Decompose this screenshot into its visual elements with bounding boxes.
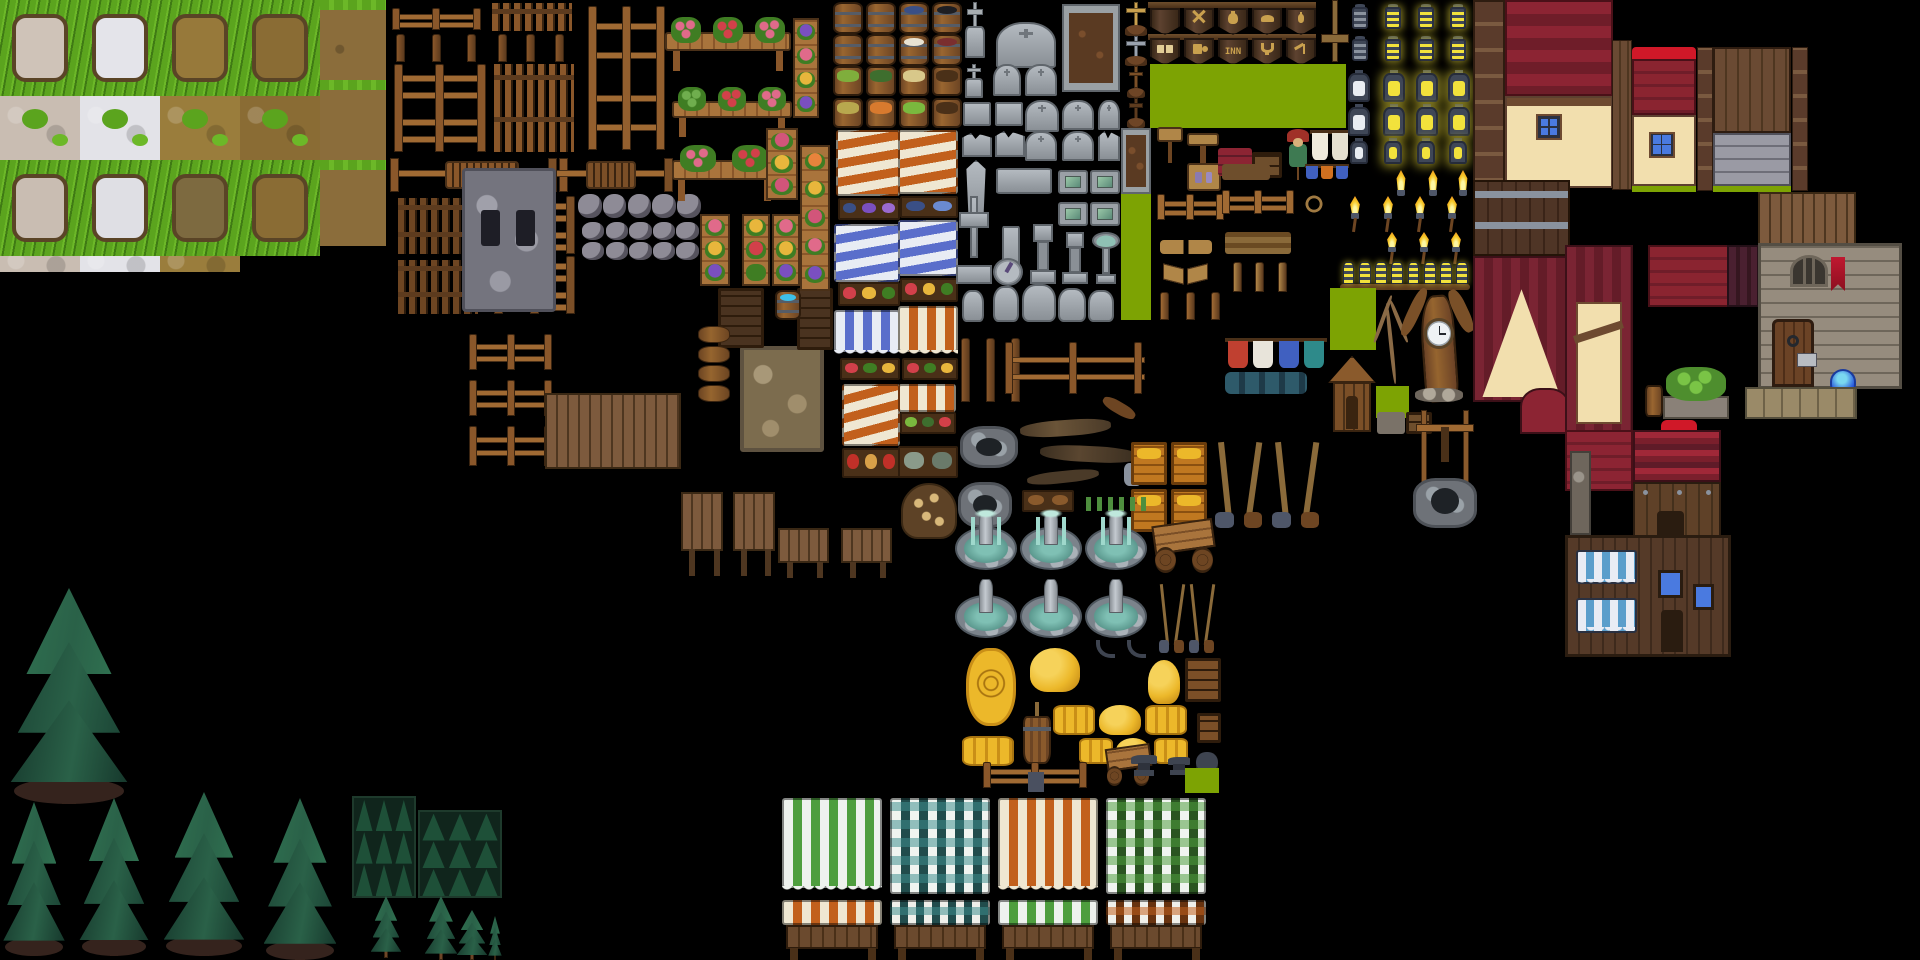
- fence-post: [432, 34, 441, 62]
- path-tile: [160, 256, 240, 272]
- log: [698, 385, 730, 402]
- cross-h: [1126, 8, 1145, 13]
- barrel-contents: [904, 38, 924, 46]
- cross-mark: [1077, 105, 1079, 111]
- bush-planter: [1663, 367, 1729, 419]
- cross-mark: [1024, 29, 1028, 38]
- tool-handle: [1275, 442, 1289, 519]
- fence-post: [986, 338, 995, 402]
- barrel-hoop: [835, 56, 861, 59]
- barrel-hoop: [868, 24, 894, 27]
- garment: [1321, 166, 1333, 180]
- tiny-pine: [475, 814, 497, 841]
- torch: [1410, 196, 1430, 232]
- inn-sign-text: INN: [1220, 40, 1246, 63]
- stick-lantern: [1375, 262, 1387, 284]
- shop-sign-pendant: [1252, 38, 1282, 65]
- goods: [843, 203, 857, 214]
- anvil: [1128, 750, 1160, 776]
- log: [698, 365, 730, 382]
- beam: [1507, 98, 1611, 106]
- flower-planter: [772, 214, 800, 286]
- lantern-body: [1418, 39, 1434, 61]
- barrel-contents: [904, 6, 924, 14]
- flowers: [755, 17, 784, 43]
- sundial: [993, 258, 1023, 286]
- lantern-frame: [1348, 107, 1370, 136]
- dirt-mound: [1125, 56, 1147, 66]
- market-stall: [1106, 900, 1206, 960]
- fence-post: [507, 334, 515, 370]
- flowers: [805, 238, 826, 255]
- bush: [1666, 367, 1727, 401]
- boulder: [629, 242, 651, 260]
- flame: [1427, 170, 1440, 191]
- awning-cloth: [898, 306, 958, 352]
- tombstone-broken: [995, 131, 1025, 157]
- cross-h: [1129, 72, 1144, 76]
- tombstone-slab: [963, 102, 991, 126]
- scythe-hook: [1096, 640, 1115, 658]
- grass-tuft: [52, 134, 68, 146]
- gable-wall: [1505, 96, 1613, 188]
- garment: [1279, 341, 1299, 368]
- hay-top: [1177, 495, 1201, 506]
- cage-lantern: [1450, 36, 1466, 64]
- lantern-small-yellow: [1449, 138, 1467, 166]
- pole-fence: [1222, 188, 1292, 216]
- barrel: [833, 2, 863, 34]
- lantern-frame: [1416, 107, 1438, 136]
- tiny-pine: [356, 832, 373, 863]
- torch-handle: [1385, 218, 1390, 232]
- barrel-flour: [899, 34, 929, 66]
- fence-post: [1278, 262, 1287, 292]
- fence-post: [1233, 262, 1242, 292]
- tiny-pine: [356, 865, 373, 896]
- basket-contents: [903, 70, 925, 81]
- goods: [847, 454, 860, 470]
- barrel-half: [1645, 385, 1663, 417]
- fountain-spray: [1104, 509, 1129, 518]
- hay-roll-spiral: [966, 648, 1016, 726]
- fence-gate-row: [548, 158, 674, 192]
- cross-mark: [1041, 105, 1043, 111]
- water-barrel: [775, 290, 801, 320]
- fence-post: [544, 334, 552, 370]
- flowers: [797, 96, 815, 112]
- fence-post: [1160, 292, 1169, 320]
- fence-post: [1186, 194, 1194, 220]
- basket-contents: [936, 102, 958, 113]
- flame: [1395, 170, 1408, 191]
- tool-head: [1301, 512, 1319, 528]
- lantern-white: [1348, 70, 1370, 104]
- stall-counter: [786, 925, 878, 949]
- lantern-body: [1352, 7, 1368, 29]
- goods: [1052, 495, 1069, 506]
- rail-fence-small: [469, 332, 551, 372]
- water-jet: [971, 517, 975, 545]
- window-pane: [1541, 128, 1548, 135]
- clothesline-posts: [1157, 292, 1221, 320]
- water-jet: [1062, 517, 1066, 545]
- torch-flame: [1418, 232, 1431, 249]
- satchel: [1195, 172, 1202, 183]
- sign-board: [1157, 127, 1183, 142]
- dial-gnomon: [1005, 262, 1014, 273]
- fence-post: [555, 34, 564, 62]
- stall-leg: [868, 948, 876, 960]
- goods: [939, 417, 951, 428]
- clothesline-colored: [1225, 338, 1327, 370]
- stall-awning-blue: [834, 224, 900, 282]
- terrain-patch: [12, 14, 68, 82]
- torch: [1378, 196, 1398, 232]
- roof: [1632, 47, 1696, 115]
- fence-post: [1005, 342, 1013, 394]
- shop-sign-tools: [1286, 38, 1316, 65]
- torch-handle: [1417, 218, 1422, 232]
- torch-flame: [1446, 196, 1459, 215]
- plaque-glass: [1097, 176, 1114, 188]
- fence-rail: [494, 117, 574, 122]
- flowers: [771, 178, 793, 195]
- stall-leg: [1084, 948, 1092, 960]
- well-rope: [1441, 427, 1449, 462]
- small-pine: [456, 910, 488, 960]
- hay-top: [1177, 448, 1201, 459]
- goods: [941, 363, 953, 374]
- cobblestone-wall-windows: [462, 168, 556, 312]
- carved-pillar: [1792, 47, 1808, 191]
- basket-carrots: [866, 98, 896, 128]
- lantern-glass: [1353, 115, 1365, 130]
- goods: [933, 201, 952, 212]
- wide-sign: [1187, 133, 1219, 163]
- jar: [1228, 13, 1237, 23]
- flowers: [678, 87, 706, 111]
- well-with-pulley: [1413, 410, 1477, 528]
- book-page: [1157, 45, 1164, 53]
- fountain-pillar: [1109, 579, 1124, 613]
- flowers: [805, 181, 826, 198]
- goods: [843, 287, 857, 299]
- tiny-pine: [449, 869, 471, 896]
- fence-post: [392, 8, 400, 30]
- monument-base: [956, 265, 992, 284]
- flame: [1457, 170, 1470, 191]
- grass-tile-row-2: [0, 160, 320, 256]
- stall-leg: [790, 948, 798, 960]
- stick-lantern: [1408, 262, 1420, 284]
- goods: [907, 363, 919, 374]
- panel-leg: [817, 562, 823, 578]
- panel-leg: [714, 549, 720, 576]
- door: [1661, 610, 1683, 652]
- tombstone-arch: [1025, 100, 1059, 132]
- lantern-glass: [1453, 81, 1465, 96]
- stall-flower-box: [840, 358, 900, 380]
- tool-head: [1215, 512, 1233, 528]
- goods: [905, 283, 918, 295]
- fence-rail: [492, 9, 572, 14]
- barrel-hoop: [868, 12, 894, 15]
- lantern-small-yellow: [1384, 138, 1402, 166]
- flowers: [771, 155, 793, 172]
- torch: [1345, 196, 1365, 232]
- basket-cabbage: [899, 98, 929, 128]
- plank-panel: [841, 528, 892, 563]
- stall-shelf-produce: [900, 412, 956, 434]
- tombstone-cross: [962, 2, 988, 58]
- tombstone-chipped: [1098, 131, 1120, 161]
- stall-awning-blue-scalloped: [834, 310, 900, 358]
- tombstone-arch: [993, 64, 1021, 96]
- awning-cloth: [998, 798, 1098, 888]
- boulder: [628, 194, 652, 218]
- door-ring: [1787, 335, 1799, 347]
- cross-v: [1134, 36, 1138, 57]
- barrel-hoop: [901, 24, 927, 27]
- wall-window: [516, 210, 535, 246]
- lantern-glass: [1421, 115, 1433, 130]
- grass-fringe: [320, 160, 386, 170]
- lantern-frame: [1448, 107, 1470, 136]
- awning-cloth: [782, 798, 882, 888]
- plaque-glass: [1097, 208, 1114, 220]
- cart-wheel: [1192, 547, 1212, 573]
- goods: [924, 363, 936, 374]
- tombstone-arch: [1025, 64, 1057, 96]
- tiny-pine: [422, 841, 444, 868]
- pole-rack: [1005, 340, 1145, 396]
- blue-window: [1536, 114, 1562, 140]
- notice-board-satchels: [1187, 163, 1221, 191]
- barrel-coal: [932, 2, 962, 34]
- path-tile: [80, 96, 160, 160]
- grass-tile-row-1: [0, 0, 320, 96]
- dark-log: [1039, 443, 1137, 464]
- fence-post: [1069, 342, 1077, 394]
- fence-posts: [392, 34, 480, 62]
- plank-screen: [778, 528, 894, 578]
- memorial-plaque: [1058, 170, 1088, 194]
- boulder: [582, 242, 604, 260]
- lantern-yellow: [1416, 70, 1438, 104]
- cross-v: [1134, 98, 1138, 119]
- flowers: [797, 48, 815, 64]
- slate-block: [1028, 772, 1044, 792]
- barrel-contents: [937, 6, 957, 14]
- sign-shield: [1150, 38, 1180, 65]
- awning-cloth: [842, 384, 900, 446]
- clothesline-white: [1310, 130, 1350, 162]
- barrel-hoop: [835, 44, 861, 47]
- log: [698, 326, 730, 343]
- tool-handle: [1245, 442, 1261, 519]
- terrain-patch: [252, 174, 308, 242]
- lantern-frame: [1416, 73, 1438, 102]
- stone-shrine: [1060, 232, 1090, 284]
- lantern-white: [1348, 104, 1370, 138]
- garment: [1304, 341, 1324, 368]
- tombstone-broken: [962, 133, 992, 157]
- dirt-mound: [1127, 118, 1145, 128]
- bare-tree: [1376, 294, 1408, 384]
- cross-h: [1129, 103, 1144, 107]
- flame: [1392, 170, 1410, 196]
- garment: [1336, 166, 1348, 180]
- shop-sign-book: [1150, 38, 1180, 65]
- lantern-yellow: [1383, 70, 1405, 104]
- fountain: [1085, 508, 1147, 570]
- fountain-spray: [974, 509, 999, 518]
- wooden-cross: [1125, 98, 1147, 128]
- boulder: [653, 222, 675, 240]
- clock-hand: [1439, 333, 1446, 335]
- barrel-hoop: [777, 310, 799, 313]
- basket-contents: [870, 102, 892, 113]
- pine-tree: [162, 792, 246, 956]
- fountain: [1020, 576, 1082, 638]
- flowers: [718, 87, 746, 111]
- tool-head: [1189, 640, 1199, 653]
- stone-path-strip: [0, 256, 240, 272]
- flowers: [771, 133, 793, 150]
- stall-awning: [1106, 900, 1206, 925]
- stall-drape-orange: [842, 384, 900, 446]
- tool-handle: [1190, 584, 1199, 645]
- tombstone-arch: [1062, 100, 1094, 130]
- stud: [1677, 490, 1682, 495]
- lantern-yellow: [1448, 104, 1470, 138]
- shop-sign-bottle: [1286, 8, 1316, 35]
- tombstone-arch: [1062, 131, 1094, 161]
- grass-tuft: [22, 109, 48, 129]
- path-tile: [0, 256, 80, 272]
- memorial-plaque: [1090, 170, 1120, 194]
- awning-scallop: [998, 886, 1098, 894]
- torch-flame: [1382, 196, 1395, 215]
- flame-holder: [1429, 190, 1436, 196]
- awning-scallop: [898, 350, 958, 358]
- door-hatch: [1657, 511, 1684, 536]
- cross-h: [967, 9, 984, 16]
- bath-base: [1096, 274, 1116, 284]
- fence-post: [566, 196, 575, 254]
- fence-post: [983, 762, 991, 788]
- torch: [1442, 196, 1462, 232]
- lantern-frame: [1384, 141, 1402, 165]
- pine-foliage: [79, 880, 148, 940]
- panel-leg: [850, 562, 856, 578]
- goods: [882, 363, 895, 374]
- tombstone-arch: [1025, 131, 1057, 161]
- stone-chimney-top: [1377, 412, 1405, 434]
- plank-panel: [778, 528, 829, 563]
- stall-crate-apples: [842, 448, 900, 478]
- lantern-frame: [1383, 107, 1405, 136]
- metal-strap: [1475, 222, 1568, 229]
- stall-awning-blue: [898, 220, 958, 276]
- terrain-patch: [172, 174, 228, 242]
- terrain-patch: [252, 14, 308, 82]
- bread: [1261, 15, 1274, 22]
- lantern-glass: [1422, 147, 1431, 159]
- hatchet-handle: [1100, 394, 1138, 423]
- tiny-pine: [422, 869, 444, 896]
- well-hole: [976, 438, 1002, 456]
- blue-awning: [1576, 598, 1637, 633]
- dark-wood-band: [1473, 180, 1570, 256]
- grass-patch-large: [1150, 64, 1346, 128]
- fence-post: [1254, 190, 1262, 214]
- flower-planter-column: [800, 145, 830, 291]
- hay-bale: [1145, 705, 1187, 735]
- lantern-frame: [1417, 141, 1435, 165]
- y-poles: [1230, 262, 1286, 292]
- tiny-pine: [376, 865, 393, 896]
- lantern-frame: [1348, 73, 1370, 102]
- picket-fence: [492, 3, 572, 31]
- water-jet: [1101, 517, 1105, 545]
- sign-shield: [1286, 8, 1316, 35]
- statue-bust: [993, 286, 1019, 322]
- wood-bench: [1185, 658, 1221, 702]
- basket-empty: [932, 66, 962, 96]
- basket-contents: [837, 102, 859, 113]
- grass-fringe: [320, 0, 386, 10]
- tool-handle: [1204, 584, 1215, 645]
- barrel-contents: [937, 38, 957, 46]
- torch-flame: [1386, 232, 1399, 249]
- cart-wheel: [1107, 766, 1122, 786]
- memorial-plaque: [1058, 202, 1088, 226]
- red-roof-house: [1632, 45, 1812, 193]
- blue-window: [1649, 132, 1675, 158]
- barrel: [833, 34, 863, 66]
- sign-shield: [1150, 8, 1180, 35]
- shingle-shed: [1633, 420, 1723, 538]
- torch-flame: [1450, 232, 1463, 249]
- lantern-body: [1418, 7, 1434, 29]
- stud: [1706, 490, 1711, 495]
- plank-pillar: [1612, 40, 1632, 190]
- stall-leg: [976, 948, 984, 960]
- roof-ridge: [1632, 47, 1696, 59]
- flowers: [776, 219, 795, 236]
- lantern-glass: [1388, 81, 1400, 96]
- flame-holder: [1397, 190, 1404, 196]
- basket-beans: [833, 66, 863, 96]
- boulder: [676, 242, 698, 260]
- tombstone-double-arch: [996, 22, 1056, 68]
- garment: [1332, 133, 1348, 160]
- tombstone-slab: [995, 102, 1023, 126]
- flowers: [746, 264, 765, 281]
- lantern-glass: [1421, 81, 1433, 96]
- small-pine: [370, 896, 402, 958]
- barrel-contents: [780, 294, 797, 301]
- red-roof-section: [1648, 245, 1730, 307]
- fence-post: [467, 34, 476, 62]
- panel-leg: [787, 562, 793, 578]
- path-tile: [160, 96, 240, 160]
- window-pane: [1550, 119, 1557, 126]
- blue-awning: [1576, 550, 1637, 585]
- cross-mark: [1077, 136, 1079, 142]
